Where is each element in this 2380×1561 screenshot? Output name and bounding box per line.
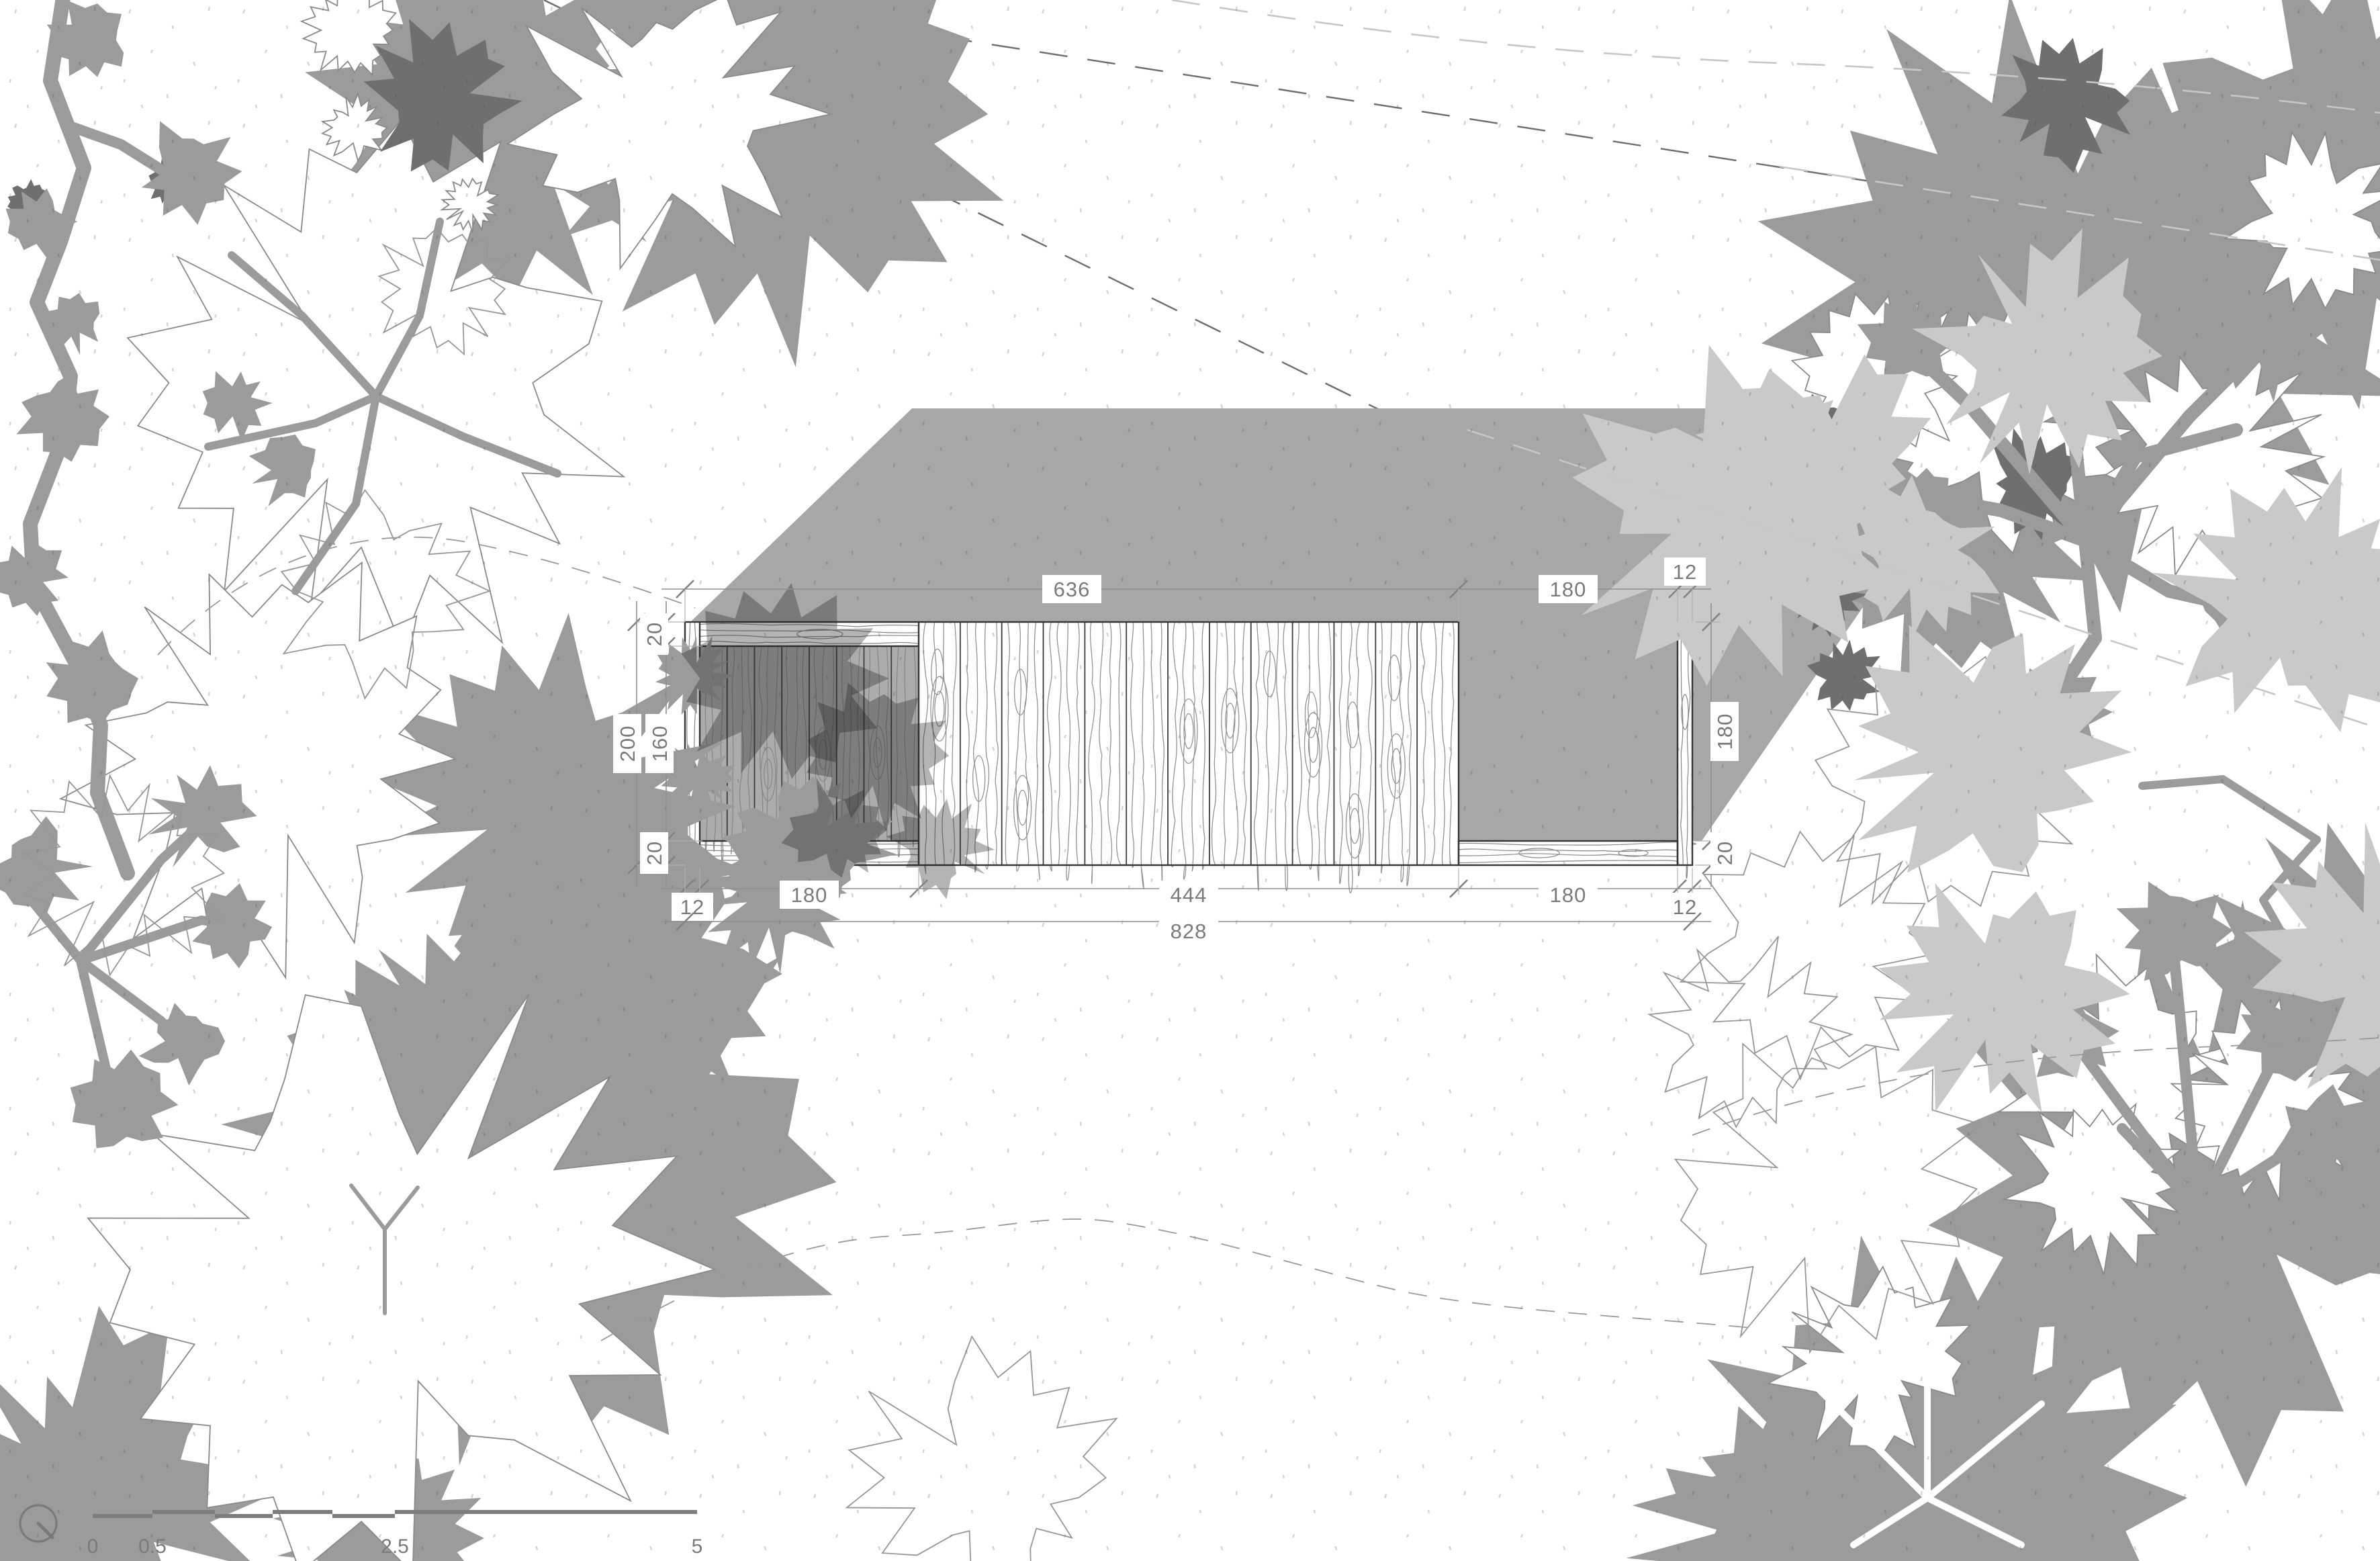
dimension-label-text: 20 xyxy=(643,841,666,865)
dimension-label-text: 180 xyxy=(1550,883,1587,907)
dimension-label-text: 20 xyxy=(1713,841,1737,865)
dimension-label: 180 xyxy=(780,881,839,909)
dimension-label: 180 xyxy=(1539,575,1598,603)
dimension-label: 636 xyxy=(1042,575,1101,603)
dimension-label: 20 xyxy=(640,832,668,874)
dimension-label-text: 636 xyxy=(1054,578,1091,601)
scale-bar-segment xyxy=(273,1510,332,1514)
scale-label-5: 5 xyxy=(692,1535,703,1558)
dimension-label: 200 xyxy=(613,714,641,773)
scale-bar-segment xyxy=(152,1510,215,1514)
dimension-label: 12 xyxy=(1664,893,1706,921)
dimension-label: 180 xyxy=(1539,881,1598,909)
scale-label-0: 0 xyxy=(87,1535,99,1558)
architectural-site-plan: 636180122020016020180201218044418012828 … xyxy=(0,0,2380,1561)
scale-label-2-5: 2.5 xyxy=(381,1535,409,1558)
dimension-label-text: 200 xyxy=(616,725,639,762)
scale-bar-segment xyxy=(332,1514,395,1518)
dimension-label-text: 12 xyxy=(1673,895,1697,919)
scale-bar-segment xyxy=(215,1514,273,1518)
dimension-label: 12 xyxy=(1664,557,1706,586)
dimension-label-text: 180 xyxy=(1713,713,1737,750)
dimension-label-text: 828 xyxy=(1171,920,1207,943)
scale-bar-segment xyxy=(395,1510,697,1514)
dimension-label: 828 xyxy=(1159,917,1218,945)
dimension-label-text: 12 xyxy=(1673,560,1697,584)
scale-bar-segment xyxy=(93,1514,152,1518)
dimension-label-text: 180 xyxy=(791,883,828,907)
dimension-label: 180 xyxy=(1710,702,1739,761)
dimension-label: 12 xyxy=(672,893,713,921)
dimension-label-text: 180 xyxy=(1550,578,1587,601)
stipple-texture xyxy=(0,0,2380,1561)
scale-label-0-5: 0.5 xyxy=(138,1535,167,1558)
dimension-label-text: 444 xyxy=(1171,883,1207,907)
dimension-label: 444 xyxy=(1159,881,1218,909)
dimension-label-text: 20 xyxy=(643,622,666,646)
dimension-label: 20 xyxy=(640,613,668,655)
dimension-label: 20 xyxy=(1710,832,1739,874)
dimension-label: 160 xyxy=(645,714,674,773)
dimension-label-text: 160 xyxy=(648,725,672,762)
